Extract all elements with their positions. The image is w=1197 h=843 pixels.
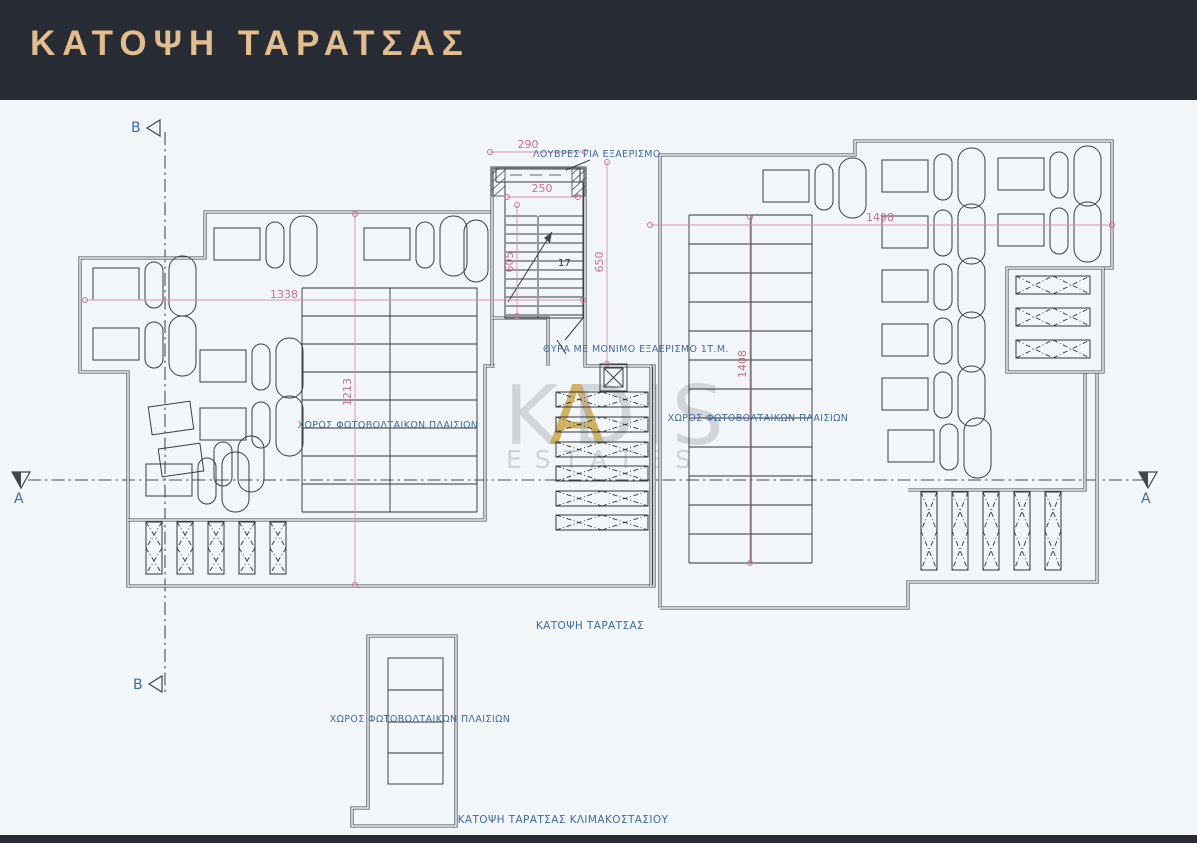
door-vent-label: ΘΥΡΑ ΜΕ ΜΟΝΙΜΟ ΕΞΑΕΡΙΣΜΟ 1Τ.Μ. <box>543 344 729 355</box>
section-arrow-icon <box>149 676 162 692</box>
dim-1213: 1213 <box>341 378 354 406</box>
vent-box <box>600 364 627 391</box>
section-marker-a-right: A <box>1141 491 1151 507</box>
louvres-label: ΛΟΥΒΡΕΣ ΓΙΑ ΕΞΑΕΡΙΣΜΟ <box>533 149 661 160</box>
section-marker-b-top: B <box>131 120 141 136</box>
watermark-subtitle: ESTATES <box>506 445 704 474</box>
pv-area-label-right: ΧΩΡΟΣ ΦΩΤΟΒΟΛΤΑΙΚΩΝ ΠΛΑΙΣΙΩΝ <box>668 413 849 424</box>
pv-area-label-left: ΧΩΡΟΣ ΦΩΤΟΒΟΛΤΑΙΚΩΝ ΠΛΑΙΣΙΩΝ <box>298 420 479 431</box>
dim-1408: 1408 <box>736 350 749 378</box>
dim-1338: 1338 <box>270 288 298 301</box>
section-marker-a-left: A <box>14 491 24 507</box>
dim-1498: 1498 <box>866 211 894 224</box>
section-marker-b-bottom: B <box>133 677 143 693</box>
pv-grid-right <box>689 215 812 563</box>
stairwell-plan-caption: ΚΑΤΟΨΗ ΤΑΡΑΤΣΑΣ ΚΛΙΜΑΚΟΣΤΑΣΙΟΥ <box>458 814 669 826</box>
pv-grid-left <box>302 288 477 512</box>
main-plan-caption: ΚΑΤΟΨΗ ΤΑΡΑΤΣΑΣ <box>536 620 644 632</box>
dim-605: 605 <box>503 252 516 273</box>
floor-plan-svg: A A B B K A DIS ESTATES <box>0 0 1197 843</box>
annotations: ΛΟΥΒΡΕΣ ΓΙΑ ΕΞΑΕΡΙΣΜΟ ΘΥΡΑ ΜΕ ΜΟΝΙΜΟ ΕΞΑ… <box>298 149 849 826</box>
stair-step-count: 17 <box>558 258 571 269</box>
section-arrow-icon <box>147 120 160 136</box>
dim-250: 250 <box>532 182 553 195</box>
bottom-bar <box>0 835 1197 843</box>
title-bar: ΚΑΤΟΨΗ ΤΑΡΑΤΣΑΣ <box>0 0 1197 100</box>
page-title: ΚΑΤΟΨΗ ΤΑΡΑΤΣΑΣ <box>0 0 1197 64</box>
dim-650: 650 <box>593 252 606 273</box>
pv-area-label-stairwell: ΧΩΡΟΣ ΦΩΤΟΒΟΛΤΑΙΚΩΝ ΠΛΑΙΣΙΩΝ <box>330 714 511 725</box>
roof-outline <box>80 141 1112 826</box>
